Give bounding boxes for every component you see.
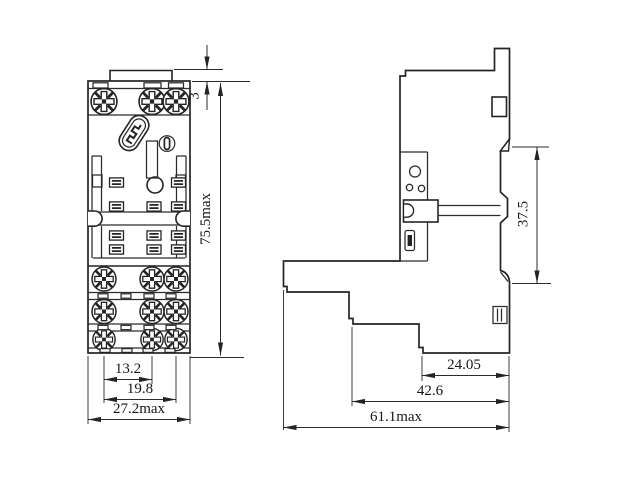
- contact-slot: [172, 178, 186, 187]
- screw: [139, 89, 165, 115]
- terminal-screw: [140, 300, 164, 324]
- dim-label-overall-width: 27.2max: [113, 401, 166, 417]
- terminal-screw: [165, 328, 187, 350]
- front-view: [88, 71, 190, 354]
- contact-slot: [147, 231, 161, 240]
- terminal-screw: [92, 267, 116, 291]
- right-edge-notch: [176, 211, 190, 226]
- contact-slot: [110, 202, 124, 211]
- terminal-screw: [92, 300, 116, 324]
- left-edge-notch: [88, 211, 102, 226]
- terminal-screw: [164, 267, 188, 291]
- contact-slot: [110, 245, 124, 254]
- dim-label-depth-step2: 42.6: [417, 383, 444, 399]
- side-view: [284, 49, 510, 354]
- screw: [163, 89, 189, 115]
- contact-slot: [147, 245, 161, 254]
- terminal-screw: [93, 328, 115, 350]
- dim-label-pitch-inner: 13.2: [115, 361, 141, 377]
- terminal-screw: [164, 300, 188, 324]
- side-body-outline: [284, 49, 510, 354]
- contact-slot: [172, 202, 186, 211]
- screw: [91, 89, 117, 115]
- dim-label-depth-step1: 24.05: [447, 357, 481, 373]
- contact-slot: [172, 231, 186, 240]
- dim-label-tab-height: 3: [187, 92, 203, 100]
- contact-slot: [172, 245, 186, 254]
- contact-slot: [110, 178, 124, 187]
- front-top-tab: [110, 71, 172, 82]
- terminal-screw: [140, 267, 164, 291]
- dim-label-overall-depth: 61.1max: [370, 409, 423, 425]
- dim-label-din-rail-span: 37.5: [516, 201, 532, 227]
- dim-label-overall-height: 75.5max: [198, 192, 214, 245]
- contact-slot: [110, 231, 124, 240]
- contact-slot: [147, 202, 161, 211]
- technical-drawing-relay-socket: 3 75.5max 13.2 19.8 27.2max: [0, 0, 640, 480]
- terminal-screw: [141, 328, 163, 350]
- dim-label-pitch-outer: 19.8: [127, 381, 153, 397]
- drawing-svg: 3 75.5max 13.2 19.8 27.2max: [0, 0, 640, 480]
